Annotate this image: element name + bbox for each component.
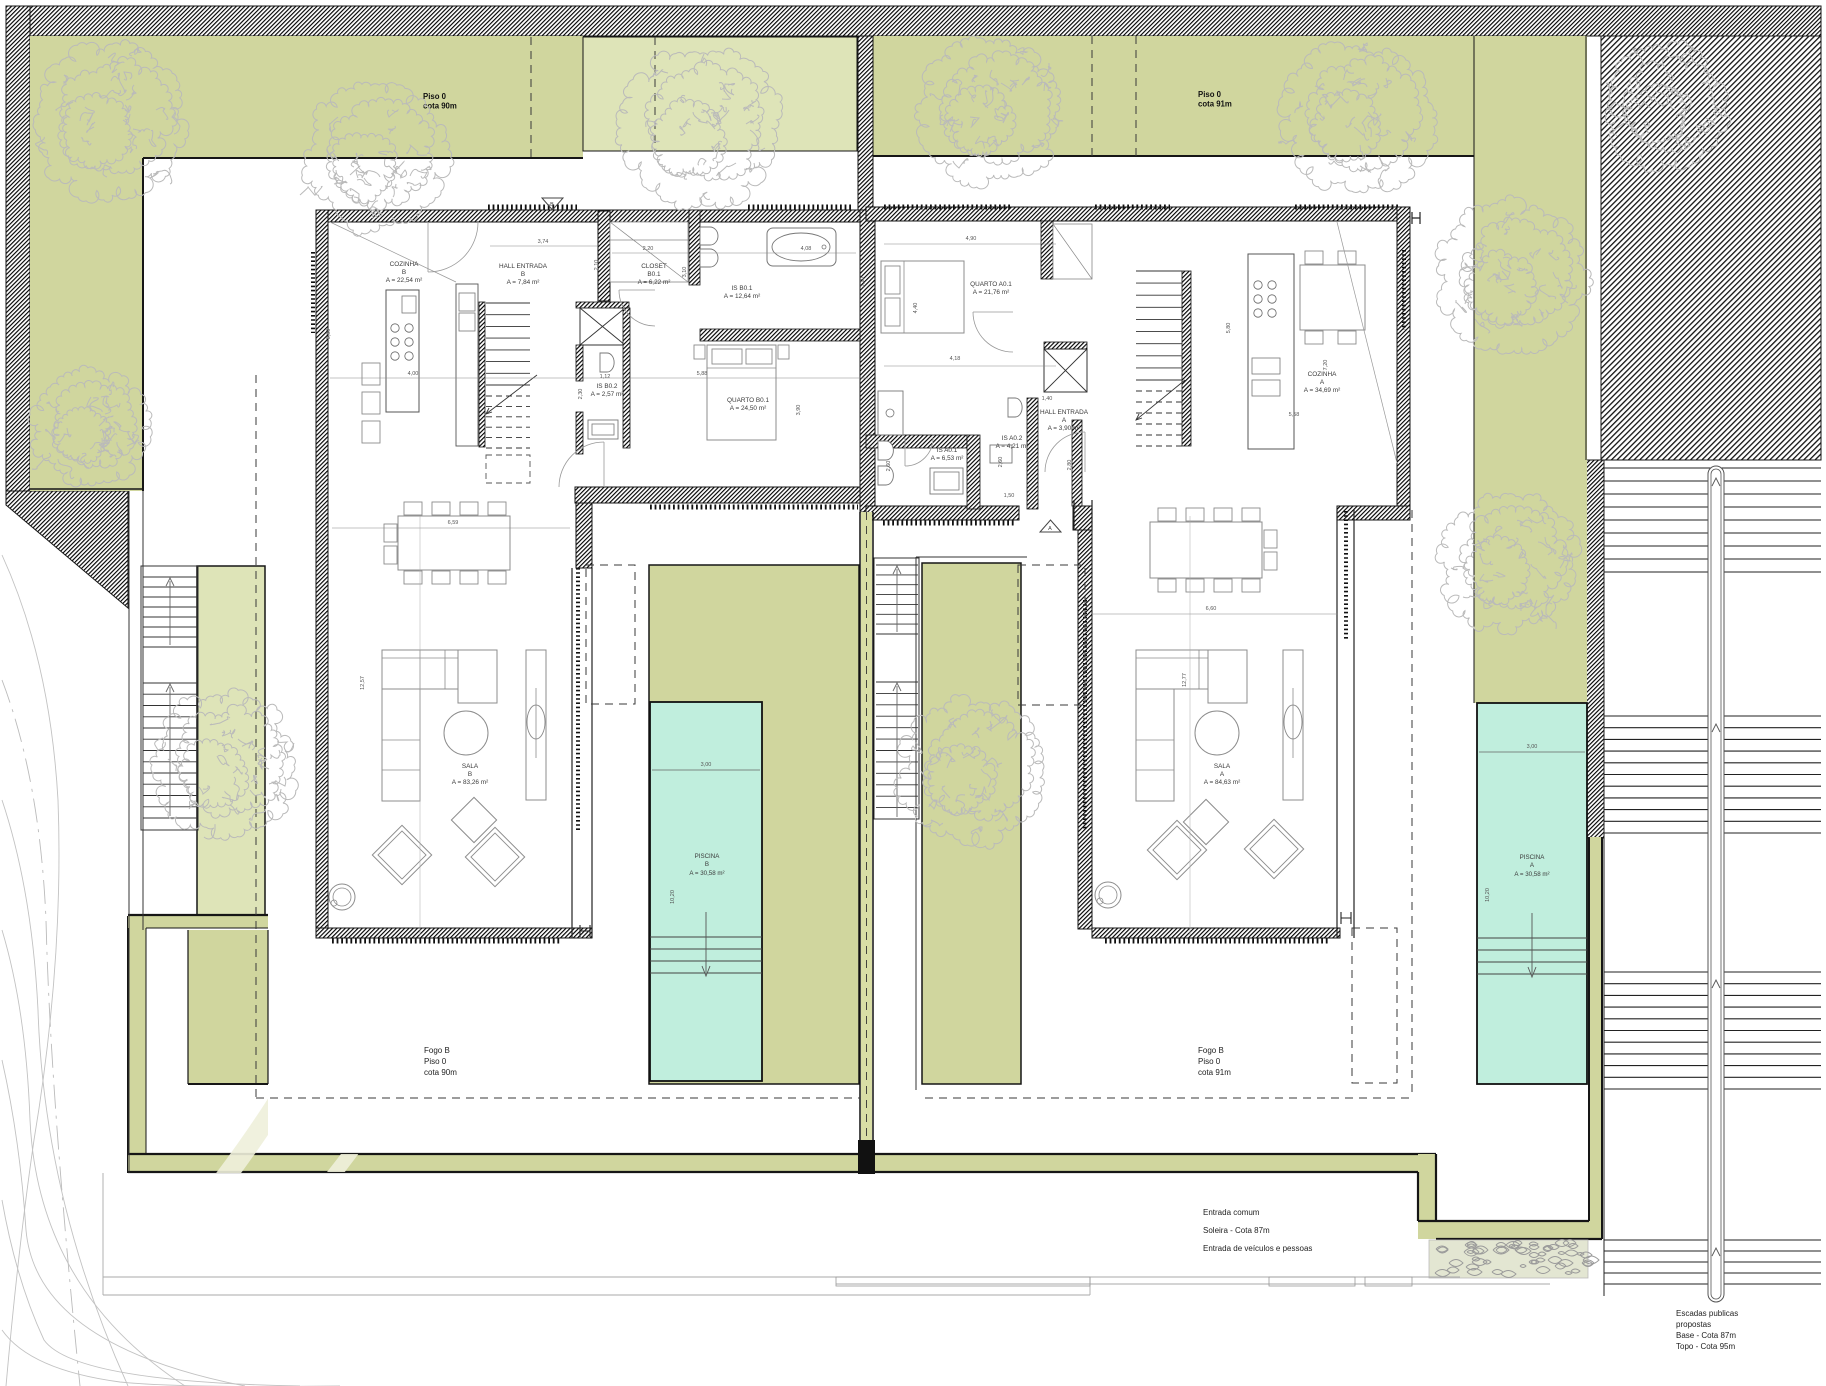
svg-text:A = 21,76 m²: A = 21,76 m² xyxy=(973,289,1009,296)
svg-text:2,10: 2,10 xyxy=(594,260,600,271)
svg-text:5,80: 5,80 xyxy=(1226,323,1232,334)
svg-text:12,57: 12,57 xyxy=(360,676,366,690)
svg-text:B: B xyxy=(705,861,709,868)
svg-text:3,10: 3,10 xyxy=(682,267,688,278)
svg-text:A = 6,22 m²: A = 6,22 m² xyxy=(638,279,671,286)
svg-text:Soleira - Cota 87m: Soleira - Cota 87m xyxy=(1203,1226,1270,1235)
svg-text:A = 6,53 m²: A = 6,53 m² xyxy=(931,455,964,462)
svg-text:QUARTO A0.1: QUARTO A0.1 xyxy=(970,281,1012,288)
svg-text:SALA: SALA xyxy=(1214,763,1231,770)
svg-text:PISCINA: PISCINA xyxy=(695,853,721,860)
svg-text:7,20: 7,20 xyxy=(1323,360,1329,371)
svg-text:4,90: 4,90 xyxy=(966,236,977,242)
svg-text:Escadas publicas: Escadas publicas xyxy=(1676,1309,1738,1318)
svg-text:3,00: 3,00 xyxy=(1527,744,1538,750)
svg-text:A = 3,90 m²: A = 3,90 m² xyxy=(1048,425,1081,432)
svg-text:2,30: 2,30 xyxy=(578,389,584,400)
svg-text:Piso 0: Piso 0 xyxy=(423,92,447,101)
svg-text:HALL ENTRADA: HALL ENTRADA xyxy=(1040,409,1089,416)
svg-text:2,60: 2,60 xyxy=(886,461,892,472)
svg-text:2,80: 2,80 xyxy=(1067,460,1073,471)
svg-text:Piso 0: Piso 0 xyxy=(1198,90,1222,99)
svg-text:Piso 0: Piso 0 xyxy=(424,1057,447,1066)
svg-text:6,59: 6,59 xyxy=(448,520,459,526)
svg-text:A = 7,84 m²: A = 7,84 m² xyxy=(507,279,540,286)
svg-text:1,12: 1,12 xyxy=(600,374,611,380)
svg-text:Piso 0: Piso 0 xyxy=(1198,1057,1221,1066)
svg-text:IS A0.2: IS A0.2 xyxy=(1002,435,1023,442)
svg-text:2,20: 2,20 xyxy=(643,246,654,252)
svg-text:PISCINA: PISCINA xyxy=(1520,854,1546,861)
svg-text:propostas: propostas xyxy=(1676,1320,1711,1329)
svg-text:B: B xyxy=(468,771,472,778)
svg-text:6,60: 6,60 xyxy=(1206,606,1217,612)
svg-text:Entrada de veículos e pessoas: Entrada de veículos e pessoas xyxy=(1203,1244,1312,1253)
svg-text:HALL ENTRADA: HALL ENTRADA xyxy=(499,263,548,270)
svg-text:4,08: 4,08 xyxy=(801,246,812,252)
svg-text:3,00: 3,00 xyxy=(701,762,712,768)
svg-text:Fogo B: Fogo B xyxy=(424,1046,450,1055)
svg-text:A: A xyxy=(1220,771,1225,778)
svg-text:A = 83,26 m²: A = 83,26 m² xyxy=(452,779,488,786)
svg-text:cota 90m: cota 90m xyxy=(424,1068,457,1077)
svg-text:Fogo B: Fogo B xyxy=(1198,1046,1224,1055)
svg-text:4,40: 4,40 xyxy=(913,303,919,314)
svg-text:IS B0.2: IS B0.2 xyxy=(597,383,618,390)
svg-text:5,58: 5,58 xyxy=(1289,412,1300,418)
svg-text:A = 34,69 m²: A = 34,69 m² xyxy=(1304,387,1340,394)
svg-text:10,20: 10,20 xyxy=(1485,888,1491,902)
svg-text:B: B xyxy=(521,271,525,278)
svg-text:2,60: 2,60 xyxy=(998,457,1004,468)
svg-text:CLOSET: CLOSET xyxy=(641,263,667,270)
svg-text:IS B0.1: IS B0.1 xyxy=(732,285,753,292)
svg-text:4,00: 4,00 xyxy=(408,371,419,377)
svg-text:A = 12,64 m²: A = 12,64 m² xyxy=(724,293,760,300)
svg-text:A: A xyxy=(1320,379,1325,386)
svg-text:A = 24,50 m²: A = 24,50 m² xyxy=(730,405,766,412)
svg-text:1,40: 1,40 xyxy=(1042,396,1053,402)
svg-text:A = 30,58 m²: A = 30,58 m² xyxy=(689,870,724,877)
svg-text:A = 30,58 m²: A = 30,58 m² xyxy=(1514,871,1549,878)
svg-text:B0.1: B0.1 xyxy=(647,271,661,278)
svg-text:IS A0.1: IS A0.1 xyxy=(937,447,958,454)
svg-text:5,88: 5,88 xyxy=(697,371,708,377)
svg-text:A: A xyxy=(1048,526,1052,532)
svg-text:6,00: 6,00 xyxy=(326,329,332,340)
svg-text:cota 91m: cota 91m xyxy=(1198,1068,1231,1077)
svg-text:SALA: SALA xyxy=(462,763,479,770)
svg-text:B: B xyxy=(550,202,554,208)
svg-text:A = 2,57 m²: A = 2,57 m² xyxy=(591,391,624,398)
svg-text:A = 22,54 m²: A = 22,54 m² xyxy=(386,277,422,284)
svg-text:3,10: 3,10 xyxy=(860,277,866,288)
svg-text:A: A xyxy=(1062,417,1067,424)
svg-text:Base - Cota 87m: Base - Cota 87m xyxy=(1676,1331,1736,1340)
svg-text:Entrada comum: Entrada comum xyxy=(1203,1208,1260,1217)
svg-text:A = 4,21 m²: A = 4,21 m² xyxy=(996,443,1029,450)
svg-text:12,77: 12,77 xyxy=(1182,673,1188,687)
svg-text:QUARTO B0.1: QUARTO B0.1 xyxy=(727,397,769,404)
svg-text:A = 84,63 m²: A = 84,63 m² xyxy=(1204,779,1240,786)
svg-text:3,74: 3,74 xyxy=(538,239,549,245)
svg-text:B: B xyxy=(402,269,406,276)
svg-text:4,18: 4,18 xyxy=(950,356,961,362)
svg-text:Topo - Cota 95m: Topo - Cota 95m xyxy=(1676,1342,1735,1351)
svg-text:cota 91m: cota 91m xyxy=(1198,100,1232,109)
svg-text:10,20: 10,20 xyxy=(670,890,676,904)
svg-text:3,90: 3,90 xyxy=(796,405,802,416)
svg-text:COZINHA: COZINHA xyxy=(1308,371,1337,378)
svg-text:1,50: 1,50 xyxy=(1004,493,1015,499)
svg-text:COZINHA: COZINHA xyxy=(390,261,419,268)
